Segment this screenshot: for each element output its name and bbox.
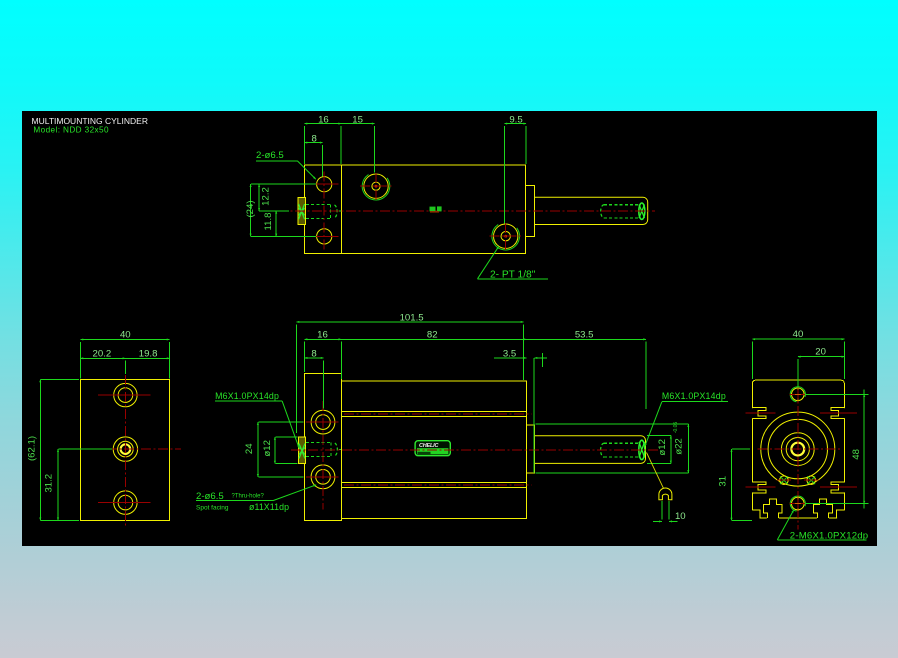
svg-text:40: 40 — [793, 329, 804, 340]
svg-text:19.8: 19.8 — [139, 349, 158, 360]
svg-text:Spot facing: Spot facing — [196, 505, 229, 512]
svg-text:10: 10 — [675, 511, 686, 522]
svg-text:82: 82 — [427, 330, 438, 341]
svg-text:16: 16 — [318, 115, 329, 126]
svg-text:101.5: 101.5 — [400, 312, 424, 323]
svg-text:-0.05: -0.05 — [673, 422, 679, 434]
svg-text:9.5: 9.5 — [509, 115, 522, 126]
svg-text:M6X1.0PX14dp: M6X1.0PX14dp — [215, 391, 279, 401]
svg-text:(24): (24) — [245, 200, 256, 217]
svg-text:ø12: ø12 — [657, 439, 668, 456]
svg-text:?Thru-hole?: ?Thru-hole? — [232, 494, 265, 500]
svg-text:48: 48 — [851, 449, 862, 460]
svg-text:20.2: 20.2 — [93, 349, 112, 360]
svg-text:8: 8 — [311, 349, 316, 360]
svg-text:Model: NDD 32x50: Model: NDD 32x50 — [33, 125, 109, 134]
svg-text:53.5: 53.5 — [575, 330, 594, 341]
svg-text:CHELIC: CHELIC — [419, 443, 440, 449]
svg-text:12.2: 12.2 — [261, 187, 272, 206]
svg-text:31: 31 — [718, 476, 729, 487]
svg-text:11.8: 11.8 — [263, 213, 274, 231]
svg-text:15: 15 — [352, 115, 363, 126]
svg-text:16: 16 — [317, 330, 328, 341]
svg-text:ø12: ø12 — [262, 440, 273, 457]
svg-text:M6X1.0PX14dp: M6X1.0PX14dp — [662, 391, 726, 401]
svg-text:ø11X11dp: ø11X11dp — [249, 502, 289, 512]
svg-text:ø22: ø22 — [674, 438, 685, 455]
svg-text:31.2: 31.2 — [44, 474, 55, 493]
svg-text:20: 20 — [815, 347, 826, 358]
svg-text:(62.1): (62.1) — [27, 436, 38, 461]
svg-text:40: 40 — [120, 330, 131, 341]
svg-text:2-ø6.5: 2-ø6.5 — [256, 150, 284, 161]
svg-text:MULTIMOUNTING CYLINDER: MULTIMOUNTING CYLINDER — [32, 116, 149, 126]
svg-text:8: 8 — [312, 133, 317, 144]
svg-text:24: 24 — [244, 443, 255, 454]
